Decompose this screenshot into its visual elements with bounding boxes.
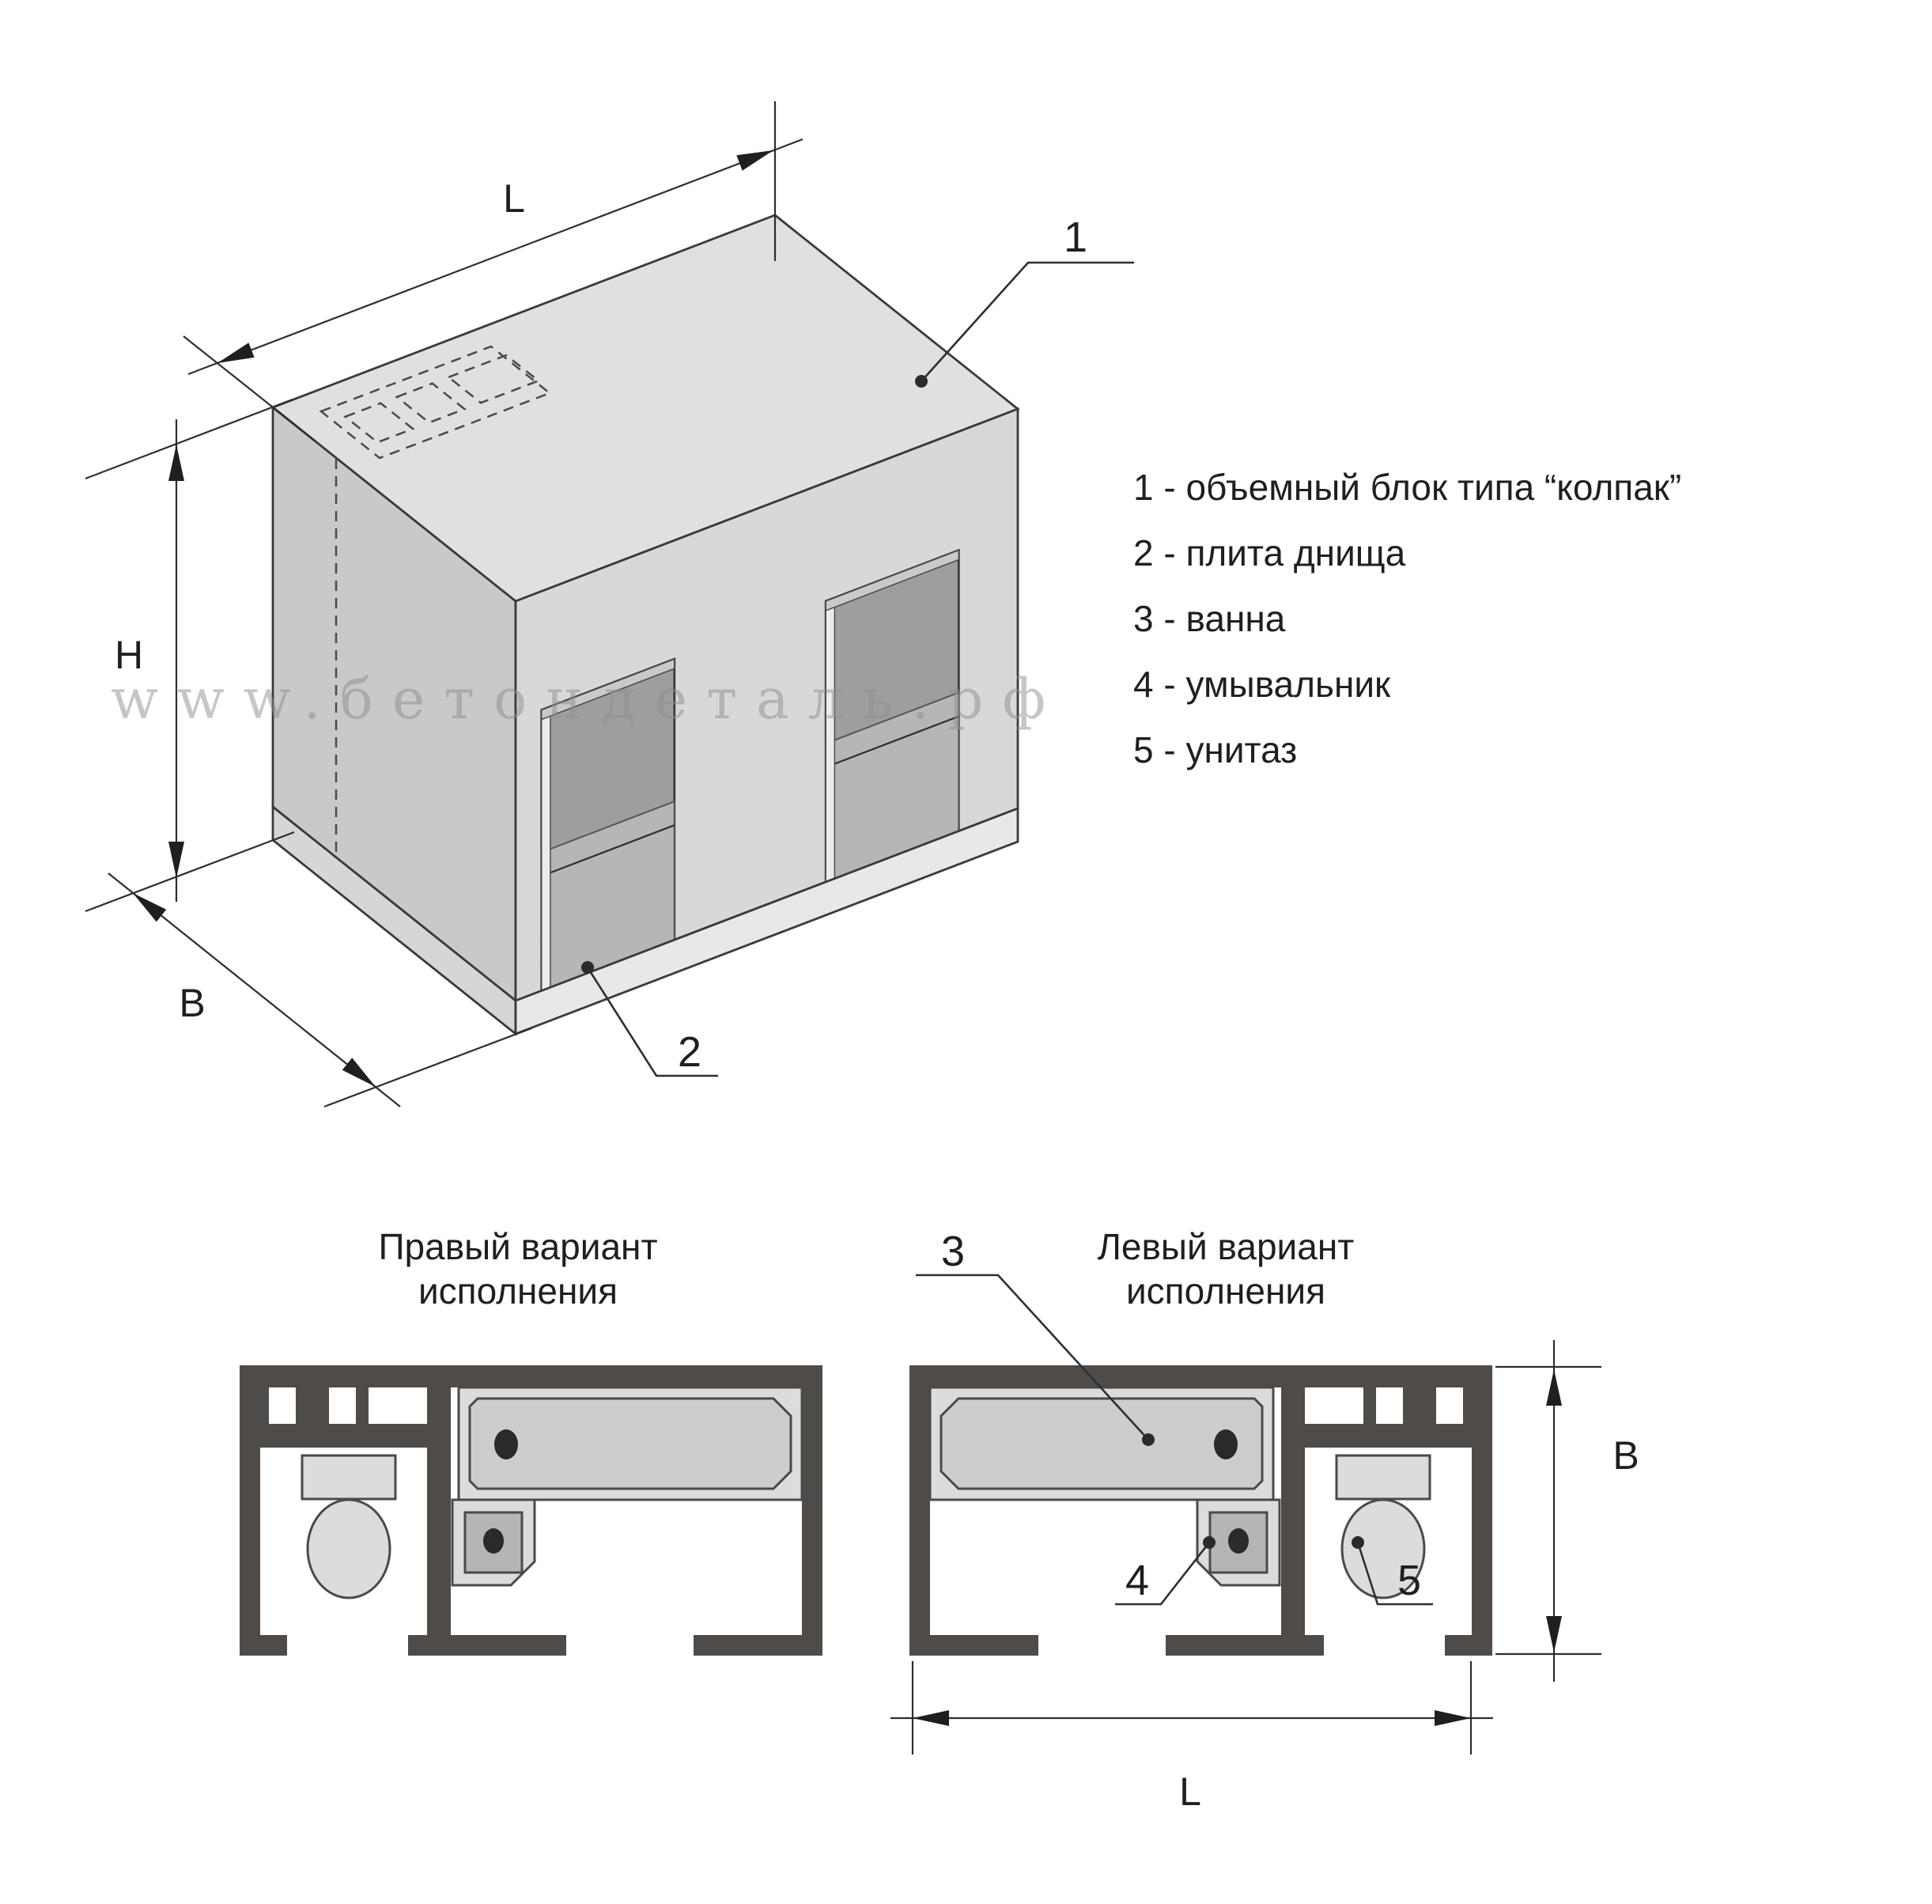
vent-opening-2	[329, 1387, 356, 1424]
plan-dim-B: B	[1495, 1340, 1639, 1682]
wall-right	[802, 1365, 822, 1656]
callout-4-label: 4	[1125, 1557, 1149, 1604]
wall-foot-right	[1445, 1635, 1472, 1656]
legend-item-toilet: 5 - унитаз	[1133, 729, 1297, 770]
dim-H-arrow-top	[168, 445, 184, 481]
vent-opening-3	[1305, 1387, 1363, 1424]
callout-3-label: 3	[941, 1228, 965, 1275]
door1-jamb	[542, 706, 550, 990]
dim-H-ext-top	[85, 399, 293, 479]
dim-L-label: L	[503, 176, 525, 221]
plan-right-sink	[452, 1500, 535, 1585]
wall-top	[909, 1365, 1492, 1387]
plan-dim-L-arrow-left	[913, 1710, 949, 1726]
toilet-bowl	[308, 1500, 390, 1598]
vent-opening-1	[1436, 1387, 1463, 1424]
sanitary-cabin-drawing: www.бетондеталь.рф L H B	[0, 0, 1932, 1904]
wall-left	[909, 1365, 930, 1656]
callout-2-label: 2	[678, 1028, 701, 1076]
legend-item-bath: 3 - ванна	[1133, 598, 1286, 639]
dim-H: H	[85, 399, 294, 911]
toilet-tank	[302, 1455, 395, 1499]
dim-H-arrow-bottom	[168, 842, 184, 878]
plan-right-toilet	[302, 1455, 395, 1598]
wall-bottom-right	[694, 1635, 802, 1656]
sink-drain	[1228, 1528, 1249, 1554]
plan-dim-B-arrow-top	[1546, 1369, 1562, 1406]
plan-left-variant: Левый вариант исполнения	[890, 1226, 1639, 1814]
plan-right-variant: Правый вариант исполнения	[240, 1226, 822, 1656]
plan-left-title-line2: исполнения	[1126, 1270, 1325, 1312]
callout-1-label: 1	[1064, 214, 1087, 261]
plan-right-bath	[459, 1387, 802, 1500]
dim-B-arrow-right	[342, 1058, 376, 1087]
dim-B-arrow-left	[133, 893, 166, 922]
wall-top	[240, 1365, 822, 1387]
vent-shaft-band	[1281, 1424, 1472, 1448]
dim-H-ext-bottom	[85, 832, 294, 911]
plan-left-bath	[930, 1387, 1273, 1500]
plan-dim-B-label: B	[1613, 1433, 1639, 1478]
dim-B-label: B	[179, 981, 205, 1025]
vent-opening-2	[1376, 1387, 1403, 1424]
wall-left	[240, 1365, 260, 1656]
legend-item-sink: 4 - умывальник	[1133, 664, 1391, 705]
wall-bottom-center	[1166, 1635, 1324, 1656]
dim-L-arrow-left	[217, 343, 255, 363]
dim-L-arrow-right	[736, 150, 773, 171]
callout-5-label: 5	[1397, 1557, 1421, 1604]
bath-drain	[494, 1429, 518, 1459]
plan-dim-L-label: L	[1179, 1770, 1201, 1814]
vent-shaft-band	[260, 1424, 451, 1448]
plan-right-title-line1: Правый вариант	[378, 1226, 657, 1267]
sink-drain	[483, 1528, 504, 1554]
wall-right	[1472, 1365, 1492, 1656]
legend-item-block: 1 - объемный блок типа “колпак”	[1133, 467, 1681, 508]
watermark-text: www.бетондеталь.рф	[111, 667, 1064, 732]
plan-right-title-line2: исполнения	[418, 1270, 618, 1312]
plan-dim-L: L	[890, 1661, 1493, 1814]
wall-bottom-center	[408, 1635, 566, 1656]
vent-opening-3	[369, 1387, 427, 1424]
legend: 1 - объемный блок типа “колпак” 2 - плит…	[1133, 467, 1681, 770]
wall-foot-left	[260, 1635, 287, 1656]
isometric-view: www.бетондеталь.рф L H B	[85, 101, 1134, 1107]
plan-dim-B-arrow-bottom	[1546, 1616, 1562, 1652]
door2-jamb	[826, 598, 834, 882]
toilet-tank	[1337, 1455, 1430, 1499]
plan-right-vent-openings	[269, 1387, 427, 1424]
plan-dim-L-arrow-right	[1435, 1710, 1471, 1726]
plan-left-vent-openings	[1305, 1387, 1463, 1424]
plan-left-title-line1: Левый вариант	[1098, 1226, 1355, 1267]
wall-bottom-left	[930, 1635, 1038, 1656]
dim-H-label: H	[115, 633, 143, 677]
legend-item-slab: 2 - плита днища	[1133, 532, 1406, 573]
vent-opening-1	[269, 1387, 296, 1424]
technical-drawing-page: www.бетондеталь.рф L H B	[0, 0, 1932, 1904]
bath-drain	[1214, 1429, 1238, 1459]
